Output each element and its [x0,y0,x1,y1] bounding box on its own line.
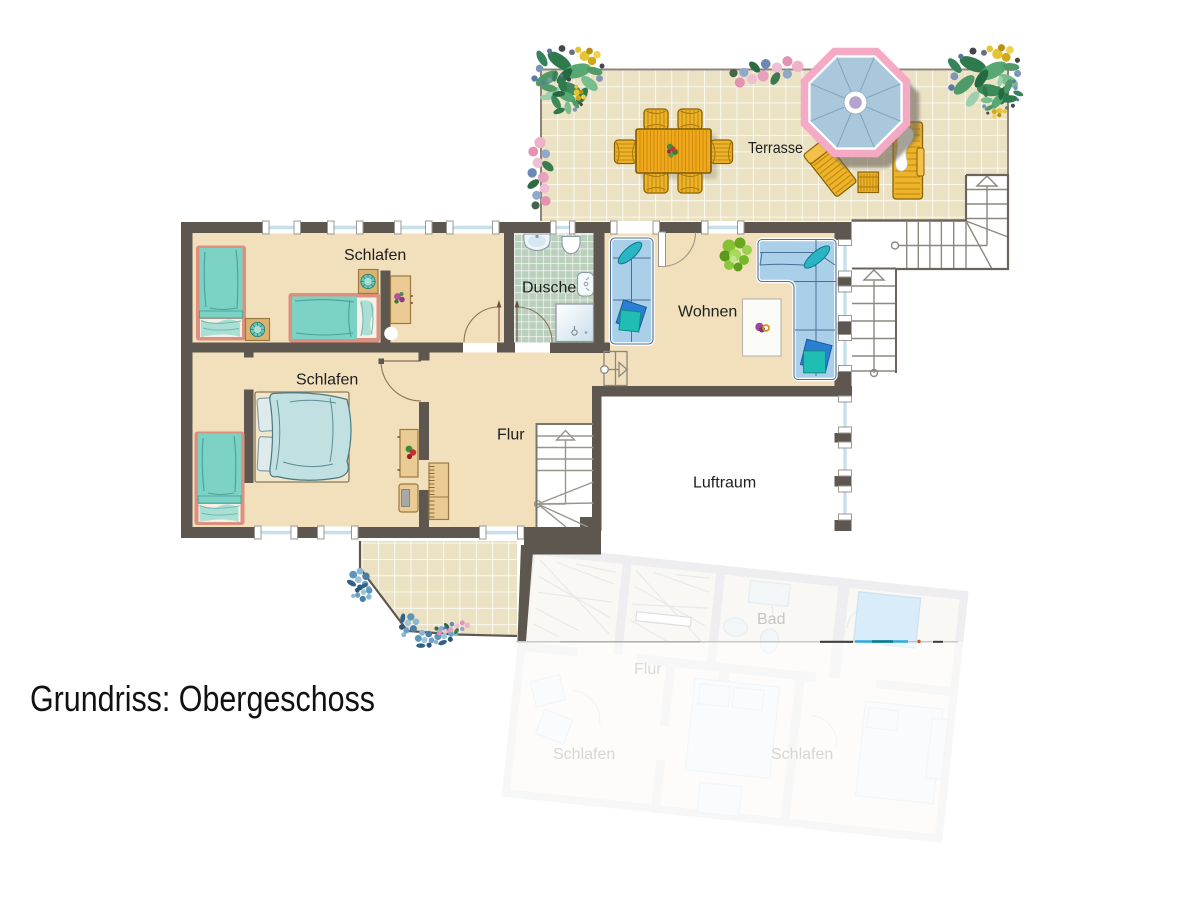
svg-text:Schlafen: Schlafen [344,247,406,264]
svg-text:Flur: Flur [497,427,525,444]
svg-text:Wohnen: Wohnen [678,304,737,321]
svg-text:Bad: Bad [757,611,785,628]
svg-text:Grundriss: Obergeschoss: Grundriss: Obergeschoss [30,678,375,719]
svg-text:Luftraum: Luftraum [693,475,756,492]
svg-text:Schlafen: Schlafen [553,746,615,763]
svg-text:Flur: Flur [634,661,662,678]
svg-text:Schlafen: Schlafen [296,372,358,389]
svg-text:Dusche: Dusche [522,280,576,297]
svg-text:Schlafen: Schlafen [771,746,833,763]
svg-text:Terrasse: Terrasse [748,140,803,157]
